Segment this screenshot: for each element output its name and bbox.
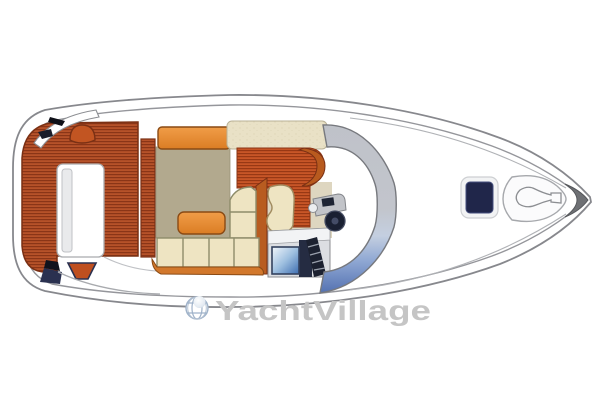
svg-text:YachtVillage: YachtVillage [215,295,431,326]
